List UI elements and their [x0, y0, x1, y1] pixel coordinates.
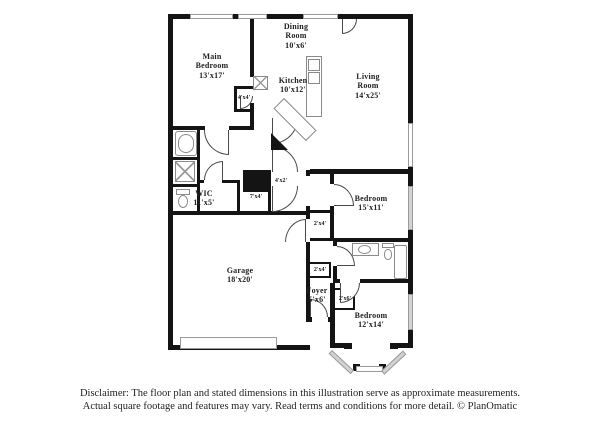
- bathtub2: [394, 245, 407, 279]
- wall-segment: [310, 238, 332, 241]
- bay-corner: [390, 343, 398, 349]
- toilet2-bowl: [384, 249, 392, 260]
- window-bay-left: [329, 350, 354, 374]
- window-bay-bottom: [356, 366, 383, 372]
- window-living-right: [408, 123, 413, 167]
- room-label-living: Living Room 14'x25': [338, 72, 398, 100]
- door-arc-hall-3: [272, 186, 298, 212]
- room-label-bedroom3: Bedroom 12'x14': [341, 311, 401, 330]
- wall-segment: [335, 308, 355, 310]
- window-dining: [238, 14, 267, 19]
- closet-label-utility: 4'x2': [269, 178, 293, 184]
- wall-segment: [310, 210, 332, 213]
- wall-bedrooms-top: [310, 169, 408, 174]
- wall-segment: [268, 170, 271, 214]
- door-arc-wic: [204, 161, 223, 180]
- wall-segment: [310, 276, 331, 278]
- vanity-sink: [358, 245, 371, 254]
- wall-segment: [173, 126, 205, 130]
- chimney-block: [243, 170, 268, 192]
- room-label-kitchen: Kitchen 10'x12': [263, 76, 323, 95]
- wall-segment: [306, 317, 312, 322]
- disclaimer-line2: Actual square footage and features may v…: [0, 400, 600, 413]
- room-label-foyer: Foyer 5'x6': [296, 286, 338, 305]
- wall-segment: [310, 262, 331, 264]
- floor-plan: Main Bedroom 13'x17' Dining Room 10'x6' …: [0, 0, 600, 436]
- closet-label-hall-a: 4'x4': [233, 95, 255, 101]
- shower: [175, 161, 195, 182]
- wall-segment: [200, 180, 204, 183]
- door-arc-main-bedroom: [204, 130, 229, 155]
- disclaimer-line1: Disclaimer: The floor plan and stated di…: [0, 387, 600, 400]
- room-label-main-bedroom: Main Bedroom 13'x17': [172, 52, 252, 80]
- window-living-top: [303, 14, 338, 19]
- wall-segment: [173, 157, 197, 160]
- bathtub-basin: [178, 134, 194, 153]
- room-label-bedroom2: Bedroom 15'x11': [341, 194, 401, 213]
- toilet2-tank: [382, 243, 394, 248]
- wall-garage-top: [168, 211, 310, 215]
- room-label-wic: WIC 11'x5': [179, 189, 229, 208]
- door-arc-entry: [342, 19, 357, 34]
- door-arc-garage: [285, 219, 306, 242]
- window-bedroom3: [408, 294, 413, 330]
- window-bay-right: [381, 351, 406, 375]
- wall-segment: [173, 184, 197, 187]
- closet-label-corridor: 2'x4': [309, 267, 331, 273]
- wall-segment: [333, 279, 340, 283]
- window-main-bedroom: [190, 14, 233, 19]
- closet-label-hall-b: 7'x4': [243, 194, 269, 200]
- wall-segment: [396, 343, 413, 348]
- wall-segment: [234, 86, 254, 89]
- wall-bathroom-top: [333, 238, 408, 242]
- wall-segment: [229, 126, 254, 130]
- closet-label-bedroom3: 2'x6': [334, 296, 356, 302]
- wall-bathroom-bottom: [360, 279, 408, 283]
- kitchen-appliance: [308, 59, 320, 71]
- window-bedroom2: [408, 186, 413, 230]
- wall-segment: [330, 174, 334, 184]
- room-label-dining: Dining Room 10'x6': [266, 22, 326, 50]
- wall-segment: [237, 180, 240, 214]
- bay-corner: [344, 343, 352, 349]
- closet-label-bedroom2: 2'x4': [309, 221, 331, 227]
- garage-door: [180, 337, 277, 349]
- wall-segment: [234, 109, 254, 112]
- room-label-garage: Garage 18'x20': [205, 266, 275, 285]
